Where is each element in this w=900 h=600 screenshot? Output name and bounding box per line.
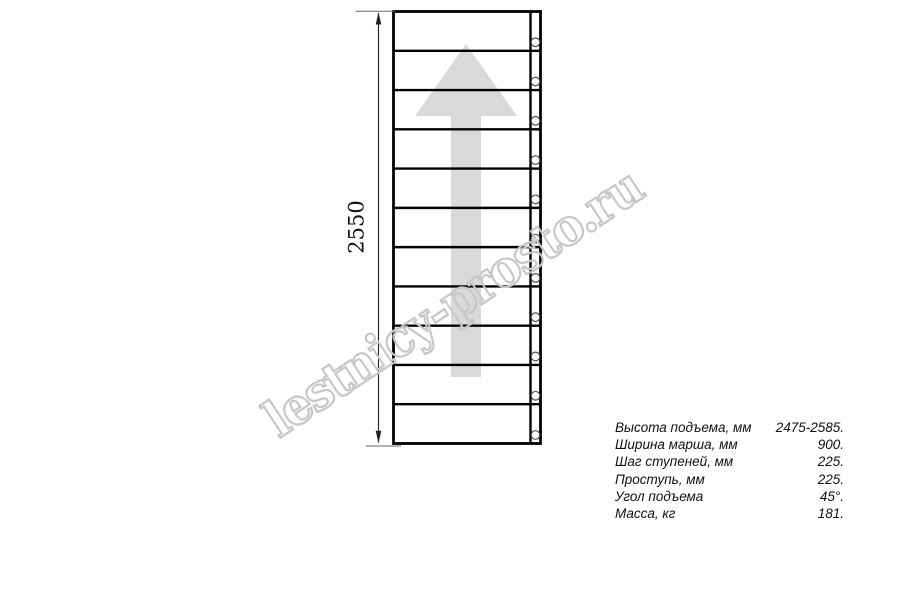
spec-value: 225.	[818, 453, 844, 470]
spec-label: Масса, кг	[615, 505, 675, 522]
spec-label: Высота подъема, мм	[615, 419, 751, 436]
bolt-circle	[531, 391, 540, 400]
bolt-circle	[531, 117, 540, 126]
spec-table: Высота подъема, мм2475-2585.Ширина марша…	[615, 419, 844, 522]
bolt-circle	[531, 313, 540, 322]
spec-row: Шаг ступеней, мм225.	[615, 453, 844, 470]
spec-label: Шаг ступеней, мм	[615, 453, 733, 470]
spec-label: Угол подъема	[615, 488, 703, 505]
spec-value: 181.	[818, 505, 844, 522]
bolt-circle	[531, 195, 540, 204]
spec-row: Масса, кг181.	[615, 505, 844, 522]
spec-value: 45°.	[820, 488, 844, 505]
bolt-circle	[531, 431, 540, 440]
spec-label: Ширина марша, мм	[615, 436, 738, 453]
canvas: 2550 lestnicy-prosto.ru Высота подъема, …	[0, 0, 900, 600]
spec-value: 900.	[818, 436, 844, 453]
spec-row: Высота подъема, мм2475-2585.	[615, 419, 844, 436]
spec-row: Угол подъема45°.	[615, 488, 844, 505]
bolt-circle	[531, 156, 540, 165]
spec-value: 225.	[818, 471, 844, 488]
spec-row: Проступь, мм225.	[615, 471, 844, 488]
bolt-circle	[531, 352, 540, 361]
spec-row: Ширина марша, мм900.	[615, 436, 844, 453]
dimension-label: 2550	[345, 200, 369, 253]
bolt-circle	[531, 38, 540, 47]
bolt-circle	[531, 77, 540, 86]
spec-label: Проступь, мм	[615, 471, 705, 488]
spec-value: 2475-2585.	[776, 419, 844, 436]
